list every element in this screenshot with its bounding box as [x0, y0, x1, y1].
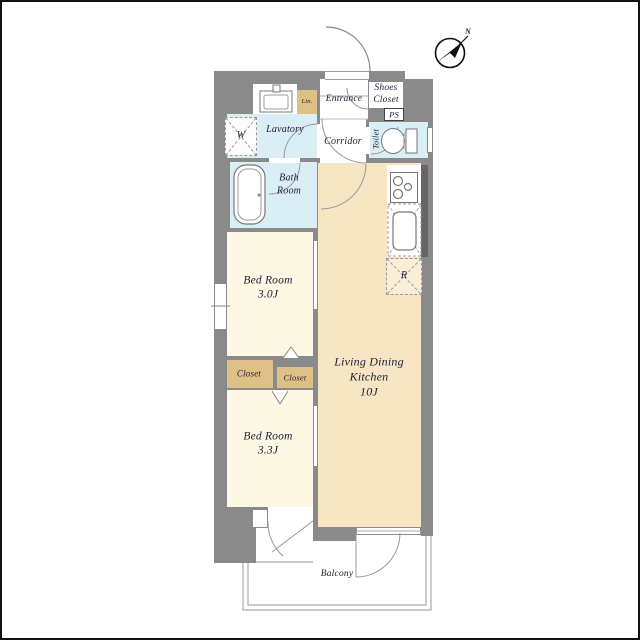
label-bedroom1-name: Bed Room — [243, 274, 292, 288]
opening-bath-door — [269, 158, 300, 163]
label-compass-north: N — [465, 27, 471, 37]
label-washer: W — [237, 130, 246, 143]
window-bedroom1-west — [214, 283, 227, 330]
wall-corner-br — [421, 527, 433, 536]
label-bath-line2: Room — [277, 185, 301, 198]
label-ldk: Living Dining Kitchen 10J — [334, 355, 404, 400]
label-closet-left: Closet — [237, 368, 261, 379]
room-sink-area — [253, 84, 297, 114]
label-ldk-line2: Kitchen — [334, 370, 404, 385]
compass-icon — [436, 36, 469, 68]
opening-toilet-door — [366, 127, 370, 154]
window-ldk-south — [356, 527, 421, 535]
label-ldk-line1: Living Dining — [334, 355, 404, 370]
label-linen: Lin. — [301, 98, 312, 106]
label-bath: Bath Room — [277, 173, 301, 198]
label-bedroom1-size: 3.0J — [243, 288, 292, 302]
stove-unit — [390, 172, 418, 203]
label-closet-right: Closet — [284, 373, 307, 384]
label-balcony: Balcony — [321, 569, 354, 581]
label-shoes-line1: Shoes — [373, 83, 398, 95]
label-ldk-size: 10J — [334, 385, 404, 400]
opening-entrance-door — [325, 71, 369, 80]
window-toilet-east — [427, 127, 433, 153]
label-lavatory: Lavatory — [266, 124, 304, 137]
label-bedroom2-size: 3.3J — [243, 444, 292, 458]
label-shoes-closet: Shoes Closet — [373, 83, 398, 107]
door-arc-entrance — [326, 27, 370, 71]
door-ldk-balcony — [356, 533, 400, 577]
label-refrigerator: R — [401, 270, 407, 283]
door-bedroom2-balcony — [268, 521, 313, 556]
wall-notch-tr — [405, 71, 433, 79]
kitchen-pillar — [421, 165, 428, 257]
floor-plan: Entrance Shoes Closet PS Lin. Lavatory W… — [0, 0, 640, 640]
label-bedroom2: Bed Room 3.3J — [243, 430, 292, 459]
wall-bottom-ldk — [313, 527, 356, 541]
label-ps: PS — [389, 109, 399, 120]
wall-block-bl — [214, 518, 256, 563]
window-bedroom2-south — [252, 509, 268, 528]
opening-lavatory-door — [317, 124, 320, 158]
sliding-door-bedroom1 — [313, 240, 318, 310]
sliding-door-bedroom2 — [313, 405, 318, 467]
label-toilet: Toilet — [371, 129, 382, 149]
opening-bedroom2-balcony — [268, 507, 313, 518]
label-corridor: Corridor — [324, 136, 362, 149]
label-bedroom2-name: Bed Room — [243, 430, 292, 444]
label-bath-line1: Bath — [277, 173, 301, 186]
room-bath — [230, 162, 317, 228]
label-shoes-line2: Closet — [373, 95, 398, 107]
label-entrance: Entrance — [326, 94, 362, 106]
label-bedroom1: Bed Room 3.0J — [243, 274, 292, 303]
